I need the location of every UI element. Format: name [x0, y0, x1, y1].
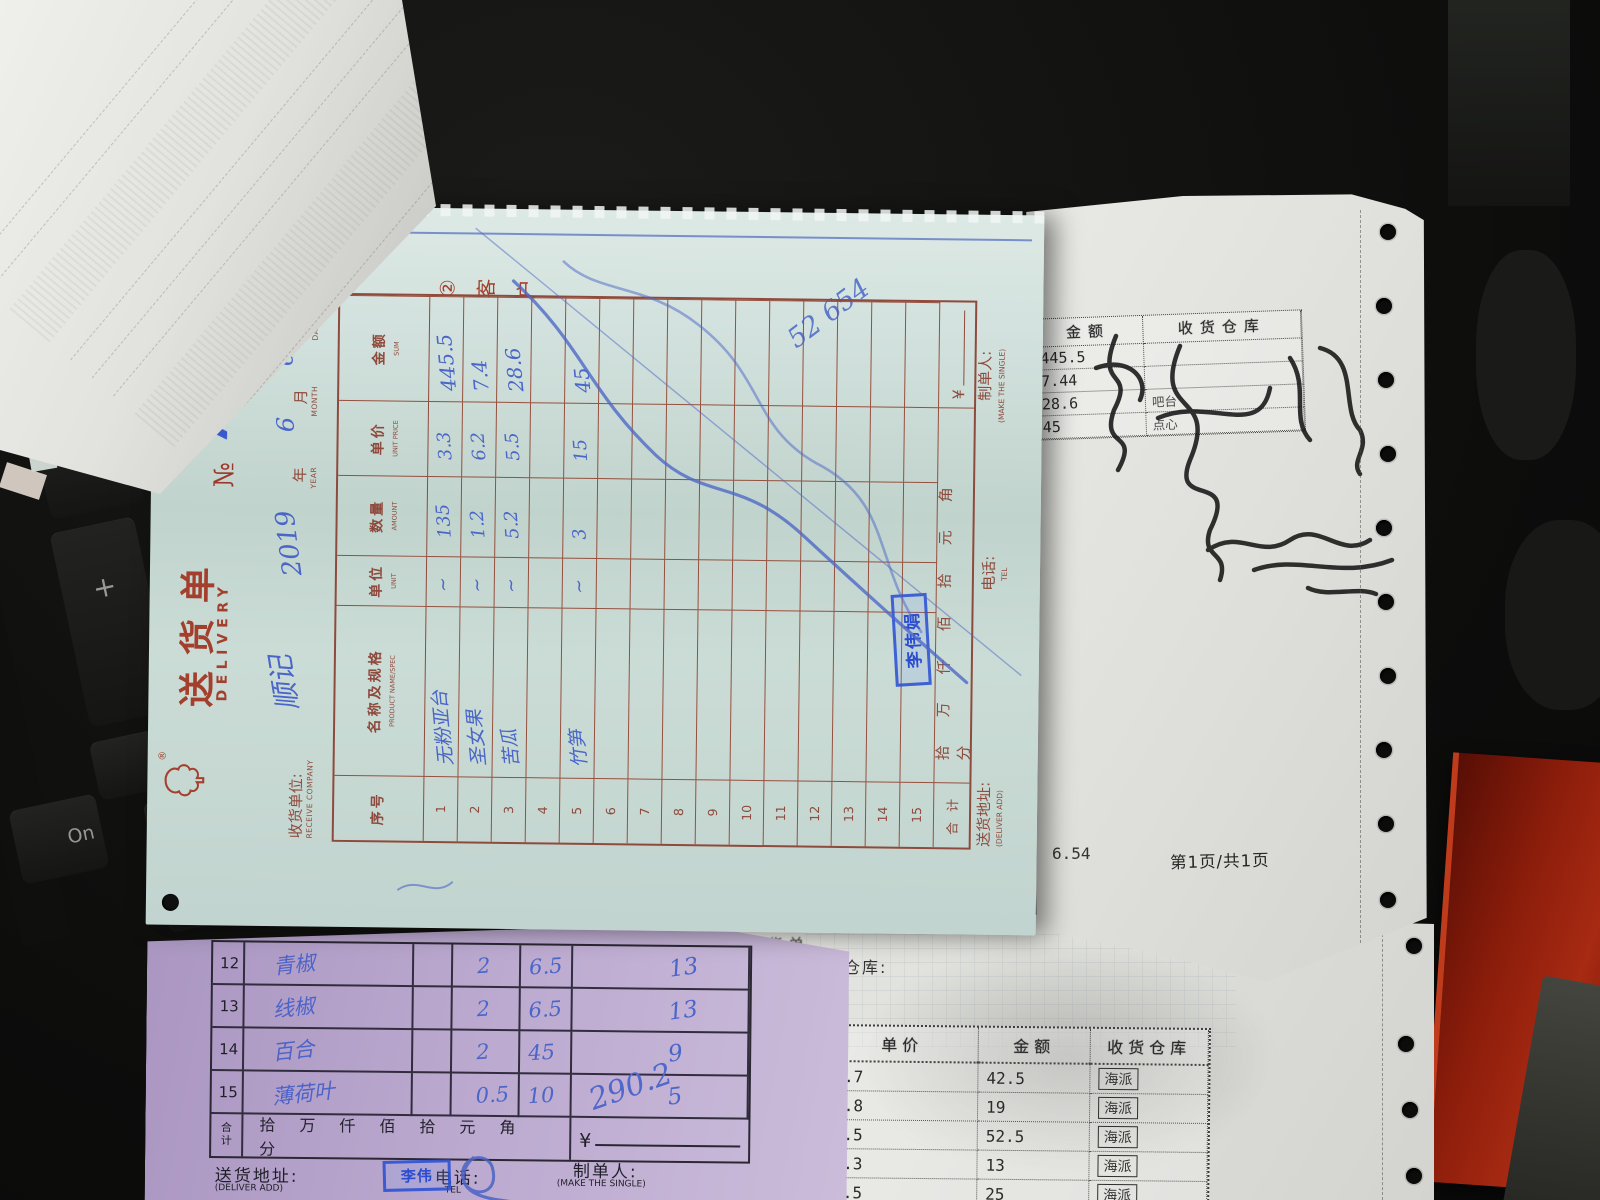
tractor-feed-hole — [1376, 520, 1392, 536]
receive-company-label-en: RECEIVE COMPANY — [305, 760, 315, 839]
tractor-feed-hole — [1380, 668, 1396, 684]
name-cell — [628, 608, 664, 778]
price-cell: 1.7 — [826, 1062, 978, 1093]
sum-cell — [599, 298, 634, 403]
row-number-cell: 5 — [560, 778, 595, 843]
name-cell — [696, 609, 732, 779]
amount-cell — [801, 481, 836, 561]
row-number: 4 — [535, 778, 551, 842]
row-number-cell: 15 — [212, 1071, 244, 1114]
price-cell — [598, 403, 633, 478]
handwritten-name: 苦瓜 — [494, 728, 524, 768]
sum-cell — [667, 299, 702, 404]
handwritten-name: 薄荷叶 — [270, 1074, 336, 1111]
row-number: 14 — [875, 782, 891, 846]
handwritten-sum: 45 — [569, 366, 595, 394]
desk-photo-scene: + On Enter 采购收货单 仓库: 单价 金额 收货仓库 1.7 42.5 — [0, 0, 1600, 1200]
handwritten-company: 顺记 — [258, 652, 307, 714]
background-object — [1448, 0, 1570, 206]
row-number: 1 — [433, 777, 449, 841]
table-body: 1 无粉亚台 ~ 135 3.3 445.5 2 圣女果 ~ 1.2 6.2 — [424, 296, 941, 847]
amount-scale: 拾万仟佰拾元角分 — [243, 1114, 571, 1159]
row-number-cell: 12 — [213, 942, 245, 985]
warehouse-value: 海派 — [1098, 1068, 1138, 1090]
row-number-cell: 11 — [764, 780, 799, 845]
month-label: 月 — [290, 389, 311, 404]
table-body: 12 青椒 2 6.5 13 13 线椒 2 6.5 13 — [212, 942, 751, 1120]
sum-cell — [633, 298, 668, 403]
tractor-feed-hole — [1378, 816, 1394, 832]
sum-cell: 45 — [565, 298, 600, 403]
handwritten-amount: 135 — [432, 503, 456, 539]
price-cell — [700, 404, 735, 479]
row-number-cell: 1 — [424, 776, 459, 841]
table-body: 445.5 7.44 28.6 吧台 45 — [1034, 338, 1305, 439]
purple-table: 12 青椒 2 6.5 13 13 线椒 2 6.5 13 — [209, 940, 752, 1164]
row-number-cell: 10 — [730, 780, 765, 845]
name-cell: 无粉亚台 — [424, 606, 460, 776]
sum-cell: 13 — [573, 946, 750, 991]
amount-cell: 3 — [563, 478, 598, 558]
sum-cell: 13 — [977, 1151, 1089, 1181]
unit-cell: ~ — [427, 556, 462, 606]
price-cell: 2.5 — [825, 1178, 977, 1200]
row-number-cell: 6 — [594, 778, 629, 843]
price-cell — [666, 404, 701, 479]
price-cell: 6.5 — [521, 945, 573, 989]
handwritten-amount: 2 — [475, 1039, 490, 1064]
handwritten-amount: 0.5 — [475, 1081, 510, 1107]
sum-cell — [735, 300, 770, 405]
row-number: 3 — [501, 778, 517, 842]
row-number-cell: 14 — [212, 1028, 244, 1071]
total-underline — [963, 310, 965, 385]
currency-cell: ¥ — [571, 1118, 748, 1162]
handwritten-sum: 7.4 — [466, 359, 493, 393]
page-indicator: 第1页/共1页 — [1170, 847, 1270, 874]
note-title-en: DELIVERY — [214, 581, 231, 701]
tractor-feed-hole — [1406, 938, 1422, 954]
handwritten-unit: ~ — [432, 575, 455, 593]
spec-cell — [414, 944, 453, 987]
purple-delivery-slip: 12 青椒 2 6.5 13 13 线椒 2 6.5 13 — [144, 914, 849, 1200]
warehouse-value: 海派 — [1098, 1097, 1138, 1119]
price-cell: 6.2 — [462, 401, 497, 476]
price-cell: 6.5 — [520, 988, 572, 1032]
handwritten-price: 5.5 — [501, 432, 524, 462]
row-number: 13 — [213, 997, 243, 1015]
year-label: 年 — [289, 467, 310, 482]
brand-tree-logo-icon — [161, 759, 208, 802]
warehouse-cell: 海派 — [1089, 1181, 1207, 1200]
name-cell: 竹笋 — [560, 608, 596, 778]
name-cell: 圣女果 — [458, 606, 494, 776]
row-number: 12 — [807, 782, 823, 846]
row-number-cell: 2 — [458, 776, 493, 841]
amount-cell — [835, 481, 870, 561]
handwritten-price: 45 — [527, 1039, 555, 1065]
amount-cell — [529, 477, 564, 557]
total-fragment: 6.54 — [1052, 844, 1091, 863]
header-product: 名称及规格PRODUCT NAME/SPEC — [334, 605, 426, 776]
perforation-line — [1360, 210, 1361, 968]
unit-cell — [801, 561, 836, 611]
price-cell: 1.3 — [825, 1149, 977, 1180]
price-cell — [836, 406, 871, 481]
sum-cell: 42.5 — [978, 1064, 1090, 1094]
row-number: 6 — [603, 779, 619, 843]
year-label-en: YEAR — [309, 467, 318, 489]
handwritten-amount: 2 — [476, 953, 491, 978]
warehouse-value: 海派 — [1098, 1126, 1138, 1148]
price-cell: 45 — [520, 1031, 572, 1075]
price-cell: 3.3 — [428, 401, 463, 476]
handwritten-unit: ~ — [568, 577, 591, 595]
handwritten-name: 青椒 — [272, 946, 317, 980]
amount-cell: 0.5 — [451, 1074, 519, 1118]
deliver-address-label-en: (DELIVER ADD) — [215, 1183, 283, 1194]
deliver-address-label-en: (DELIVER ADD) — [995, 790, 1005, 847]
row-number: 12 — [213, 954, 243, 972]
spec-cell — [413, 987, 452, 1030]
row-number: 8 — [671, 780, 687, 844]
amount-cell — [733, 480, 768, 560]
unit-cell — [597, 558, 632, 608]
table-row: 1.7 42.5 海派 — [826, 1062, 1208, 1095]
tractor-feed-hole — [1380, 892, 1396, 908]
name-stamp: 李伟娟 — [891, 593, 932, 687]
row-number-cell: 15 — [900, 782, 935, 847]
unit-cell — [529, 557, 564, 607]
row-number-cell: 9 — [696, 779, 731, 844]
unit-cell: ~ — [461, 556, 496, 606]
sum-cell: 19 — [978, 1093, 1090, 1123]
handwritten-price: 10 — [527, 1082, 555, 1108]
amount-scale: 拾万仟佰拾元角分 — [934, 407, 974, 782]
name-cell: 青椒 — [245, 942, 414, 987]
price-cell: 10 — [519, 1074, 571, 1118]
price-cell: 3.8 — [826, 1091, 978, 1122]
unit-cell — [835, 561, 870, 611]
name-cell: 薄荷叶 — [244, 1071, 413, 1116]
deliver-address-label: 送货地址: — [973, 782, 995, 847]
handwritten-name: 线椒 — [271, 989, 316, 1023]
sum-cell — [905, 302, 940, 407]
row-number: 13 — [841, 782, 857, 846]
name-stamp: 李伟 — [382, 1159, 451, 1192]
name-cell: 百合 — [244, 1028, 413, 1073]
handwritten-amount: 1.2 — [467, 509, 490, 539]
amount-cell — [869, 481, 904, 561]
tractor-feed-hole — [1376, 298, 1392, 314]
perforation-line — [1382, 934, 1383, 1200]
warehouse-label: 仓库: — [844, 954, 887, 978]
amount-cell — [665, 479, 700, 559]
number-sign: № — [209, 462, 240, 488]
table-header-row: 序号 名称及规格PRODUCT NAME/SPEC 单位UNIT 数量AMOUN… — [334, 295, 431, 841]
amount-cell — [597, 478, 632, 558]
background-object — [1505, 520, 1600, 710]
amount-cell — [767, 480, 802, 560]
tractor-feed-hole — [1380, 224, 1396, 240]
price-cell — [870, 406, 905, 481]
maker-label: 制单人: — [974, 351, 996, 401]
total-label: 合 计 — [211, 1114, 243, 1156]
tractor-feed-hole — [1378, 594, 1394, 610]
column-header-price: 单价 — [827, 1026, 979, 1064]
header-serial: 序号 — [334, 775, 425, 841]
amount-cell — [903, 482, 938, 562]
price-cell — [734, 405, 769, 480]
column-header-sum: 金额 — [1033, 316, 1144, 348]
maker-label-en: (MAKE THE SINGLE) — [997, 349, 1007, 423]
handwritten-unit: ~ — [500, 576, 523, 594]
handwritten-name: 百合 — [271, 1032, 316, 1066]
sum-cell — [871, 301, 906, 406]
table-row: 3.5 52.5 海派 — [826, 1120, 1208, 1153]
handwritten-name: 竹笋 — [562, 729, 592, 769]
header-price: 单价UNIT PRICE — [338, 400, 429, 476]
row-number-cell: 13 — [212, 985, 244, 1028]
price-cell — [768, 405, 803, 480]
table-row: 2.5 25 海派 — [825, 1178, 1207, 1200]
handwritten-amount: 5.2 — [501, 510, 524, 540]
price-cell: 3.5 — [826, 1120, 978, 1151]
sum-cell: 52.5 — [978, 1122, 1090, 1152]
warehouse-cell: 海派 — [1090, 1065, 1208, 1095]
unit-cell: ~ — [495, 557, 530, 607]
sum-cell: 445.5 — [429, 296, 464, 401]
unit-cell — [631, 558, 666, 608]
handwritten-price: 15 — [570, 438, 593, 462]
tractor-feed-hole — [1406, 1168, 1422, 1184]
handwritten-price: 6.5 — [528, 953, 563, 979]
name-cell — [764, 610, 800, 780]
spec-cell — [413, 1030, 452, 1073]
amount-cell: 135 — [427, 476, 462, 556]
row-number: 10 — [739, 781, 755, 845]
row-number-cell: 7 — [628, 778, 663, 843]
sum-cell: 25 — [977, 1180, 1089, 1200]
unit-cell — [767, 560, 802, 610]
row-number: 15 — [909, 783, 925, 847]
handwritten-amount: 3 — [569, 528, 591, 541]
row-number: 9 — [705, 780, 721, 844]
total-label-char: 计 — [221, 1135, 232, 1148]
unit-cell: ~ — [563, 558, 598, 608]
sum-cell: 28.6 — [497, 297, 532, 402]
receive-company-label: 收货单位: — [285, 773, 307, 838]
header-unit: 单位UNIT — [337, 555, 428, 606]
tractor-feed-hole — [1376, 742, 1392, 758]
warehouse-cell: 海派 — [1090, 1094, 1208, 1124]
price-cell: 15 — [564, 403, 599, 478]
unit-cell — [699, 559, 734, 609]
sum-cell — [837, 301, 872, 406]
amount-cell — [631, 478, 666, 558]
name-cell: 线椒 — [244, 985, 413, 1030]
currency-cell: ¥ — [939, 302, 975, 407]
amount-cell — [699, 479, 734, 559]
row-number-cell: 13 — [832, 781, 867, 846]
handwritten-price: 3.3 — [433, 431, 456, 461]
unit-cell — [665, 559, 700, 609]
table-row: 1.3 13 海派 — [825, 1149, 1207, 1182]
header-sum: 金额SUM — [339, 295, 430, 401]
handwritten-sum: 9 — [667, 1040, 685, 1068]
warehouse-value: 海派 — [1097, 1155, 1137, 1177]
yen-sign: ¥ — [579, 1130, 591, 1152]
table-body: 1.7 42.5 海派 3.8 19 海派 3.5 52.5 海派 — [825, 1062, 1208, 1200]
sum-cell — [769, 300, 804, 405]
row-number: 2 — [467, 777, 483, 841]
yen-sign: ¥ — [949, 389, 968, 399]
amount-cell: 2 — [452, 1031, 520, 1075]
row-number-cell: 4 — [526, 777, 561, 842]
keyboard-key — [0, 545, 72, 948]
sum-cell: 13 — [572, 989, 749, 1034]
amount-cell: 5.2 — [495, 477, 530, 557]
continuous-form-sheet-top: 金额 收货仓库 445.5 7.44 28.6 — [1018, 188, 1430, 990]
spec-cell — [412, 1073, 451, 1116]
month-label-en: MONTH — [310, 386, 319, 417]
total-row: 合 计 拾万仟佰拾元角分 ¥ — [211, 1114, 748, 1162]
tractor-feed-hole — [1398, 1036, 1414, 1052]
handwritten-amount: 2 — [476, 996, 491, 1021]
punched-hole — [162, 894, 179, 911]
handwritten-month: 6 — [272, 417, 300, 433]
handwritten-name: 无粉亚台 — [425, 689, 459, 767]
column-header-sum: 金额 — [979, 1028, 1091, 1065]
amount-cell: 1.2 — [461, 476, 496, 556]
price-cell: 5.5 — [496, 402, 531, 477]
row-number-cell: 12 — [798, 781, 833, 846]
sum-cell: 45 — [1036, 413, 1147, 440]
row-number-cell: 14 — [866, 781, 901, 846]
tel-label: 电话: — [978, 556, 999, 591]
row-number: 5 — [569, 779, 585, 843]
row-number: 15 — [212, 1083, 242, 1101]
receipt-table-top: 金额 收货仓库 445.5 7.44 28.6 — [1032, 309, 1306, 440]
warehouse-cell: 点心 — [1146, 407, 1305, 436]
tractor-feed-hole — [1378, 372, 1394, 388]
warehouse-value: 海派 — [1097, 1184, 1137, 1200]
name-cell — [662, 609, 698, 779]
note-table: 序号 名称及规格PRODUCT NAME/SPEC 单位UNIT 数量AMOUN… — [332, 293, 978, 850]
maker-label-en: (MAKE THE SINGLE) — [557, 1179, 646, 1190]
amount-cell: 2 — [453, 945, 521, 989]
sum-cell — [531, 297, 566, 402]
row-number: 11 — [773, 781, 789, 845]
handwritten-price: 6.2 — [467, 431, 490, 461]
price-cell — [632, 403, 667, 478]
row-number-cell: 3 — [492, 777, 527, 842]
total-row: 合 计 拾万仟佰拾元角分 ¥ — [934, 302, 976, 847]
table-header-row: 单价 金额 收货仓库 — [827, 1026, 1209, 1066]
receipt-table-bottom: 单价 金额 收货仓库 1.7 42.5 海派 3.8 19 海派 — [823, 1024, 1211, 1200]
name-cell — [526, 607, 562, 777]
handwritten-price: 6.5 — [528, 996, 563, 1022]
handwritten-year: 2019 — [270, 508, 308, 577]
amount-cell: 2 — [452, 988, 520, 1032]
handwritten-sum: 13 — [668, 953, 700, 983]
total-underline — [595, 1144, 740, 1148]
sum-cell: 7.4 — [463, 296, 498, 401]
tel-label-en: TEL — [1000, 567, 1009, 581]
name-cell — [594, 608, 630, 778]
name-cell — [798, 611, 834, 781]
handwritten-sum: 445.5 — [431, 333, 460, 392]
handwritten-sum: 28.6 — [500, 346, 528, 393]
row-number: 7 — [637, 780, 653, 844]
column-header-warehouse: 收货仓库 — [1091, 1029, 1209, 1066]
registered-mark: ® — [158, 751, 169, 761]
name-cell — [730, 610, 766, 780]
handwritten-name: 圣女果 — [459, 708, 491, 767]
header-amount: 数量AMOUNT — [337, 475, 428, 556]
price-cell — [904, 407, 939, 482]
table-row: 3.8 19 海派 — [826, 1091, 1208, 1124]
warehouse-cell: 海派 — [1090, 1123, 1208, 1153]
price-cell — [530, 402, 565, 477]
tractor-feed-hole — [1402, 1102, 1418, 1118]
total-label: 合 计 — [934, 782, 970, 847]
name-cell: 苦瓜 — [492, 607, 528, 777]
handwritten-sum: 13 — [667, 996, 699, 1026]
price-cell — [802, 406, 837, 481]
unit-cell — [733, 560, 768, 610]
row-number-cell: 8 — [662, 779, 697, 844]
name-cell — [832, 611, 868, 781]
sum-cell — [701, 299, 736, 404]
row-number: 14 — [212, 1040, 242, 1058]
tractor-feed-hole — [1380, 446, 1396, 462]
warehouse-cell: 海派 — [1089, 1152, 1207, 1182]
background-object — [1476, 250, 1576, 460]
sum-cell — [803, 301, 838, 406]
handwritten-unit: ~ — [466, 576, 489, 594]
